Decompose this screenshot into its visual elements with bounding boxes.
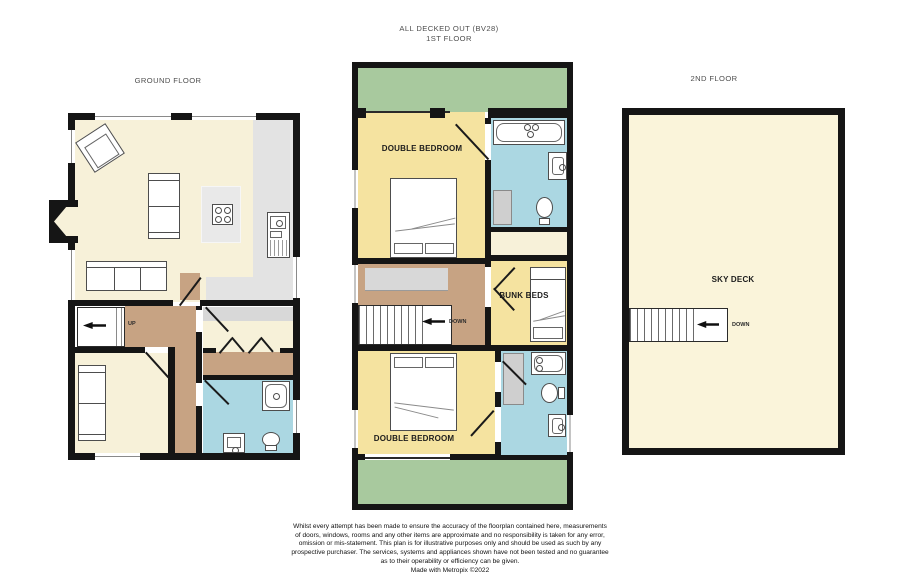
wall: [485, 160, 491, 267]
bathroom-sink-icon: [548, 414, 566, 437]
bathtub-icon: [531, 352, 566, 375]
plan-heading-line1: ALL DECKED OUT (BV28): [399, 24, 498, 33]
window: [352, 265, 358, 303]
wall: [352, 62, 573, 68]
wall: [168, 347, 175, 453]
wall: [196, 306, 202, 310]
sky-deck-label: SKY DECK: [712, 275, 755, 284]
bedroom-bottom-label: DOUBLE BEDROOM: [374, 434, 455, 443]
lobby-floor: [491, 232, 567, 256]
window: [293, 257, 300, 298]
wall: [450, 454, 495, 460]
stairs-down-label: DOWN: [449, 319, 466, 325]
wardrobe: [365, 268, 448, 291]
bathroom-sink-icon: [223, 433, 245, 453]
second-floor-title: 2ND FLOOR: [690, 74, 737, 83]
wall: [196, 332, 202, 383]
disclaimer-line: Whilst every attempt has been made to en…: [291, 523, 608, 532]
wall: [203, 348, 216, 353]
snug-sofa: [78, 365, 106, 441]
hallway-floor-lower: [175, 347, 196, 453]
disclaimer-line: omission or mis-statement. This plan is …: [291, 540, 608, 549]
wall: [491, 227, 567, 232]
bedroom-top-label: DOUBLE BEDROOM: [382, 144, 463, 153]
wall: [491, 255, 567, 261]
wall: [485, 118, 491, 124]
patio-door-line: [365, 457, 450, 459]
kitchen-sink-icon: [267, 212, 290, 258]
wall: [203, 375, 293, 380]
toilet-tank: [539, 218, 550, 225]
stairs-down: [358, 305, 452, 345]
shower-icon: [262, 381, 290, 411]
bathroom-sink-icon: [548, 152, 567, 180]
stairs-up-label: UP: [128, 321, 136, 327]
window: [95, 453, 140, 460]
double-bed: [390, 178, 457, 258]
stairs-up: [77, 307, 125, 347]
wall: [358, 258, 485, 264]
kitchen-floor: [253, 117, 293, 295]
wall: [352, 504, 573, 510]
wall: [68, 300, 173, 306]
plan-heading-line2: 1ST FLOOR: [426, 34, 472, 43]
wall: [485, 307, 491, 348]
toilet-icon: [536, 197, 553, 218]
window: [352, 170, 358, 208]
sofa-two-seat: [148, 173, 180, 239]
deck-top: [358, 68, 567, 112]
ground-floor-plan: UP: [68, 110, 300, 460]
wall: [495, 392, 501, 407]
window: [567, 415, 573, 452]
bunk-room-label: BUNK BEDS: [499, 291, 548, 300]
second-floor-plan: SKY DECK DOWN: [622, 108, 845, 455]
toilet-tank: [558, 387, 565, 399]
wall: [68, 347, 145, 353]
disclaimer-line: as to their operability or efficiency ca…: [291, 558, 608, 567]
wall: [196, 406, 202, 453]
wall: [430, 108, 445, 118]
wall: [495, 351, 501, 362]
window: [352, 410, 358, 448]
sofa-three-seat: [86, 261, 167, 291]
window: [192, 113, 256, 120]
toilet-icon: [541, 383, 558, 403]
double-bed: [390, 353, 457, 431]
wall: [358, 345, 567, 351]
inner-hall-floor: [203, 352, 293, 375]
wall: [358, 454, 365, 460]
wall: [200, 300, 300, 306]
wall: [358, 108, 366, 118]
disclaimer-line: prospective purchaser. The services, sys…: [291, 549, 608, 558]
bunk-bed: [530, 267, 566, 342]
window: [95, 113, 171, 120]
toilet-tank: [265, 445, 277, 451]
ground-floor-title: GROUND FLOOR: [135, 76, 202, 85]
hob-icon: [212, 204, 233, 225]
credit-line: Made with Metropix ©2022: [291, 567, 608, 575]
wall: [495, 442, 501, 455]
first-floor-plan: DOUBLE BEDROOM DOWN: [352, 62, 573, 510]
bathtub-icon: [493, 120, 565, 145]
hall-doorway-floor: [180, 273, 200, 300]
cupboard: [493, 190, 512, 225]
wall: [488, 108, 567, 118]
kitchen-floor-band: [206, 277, 293, 300]
floorplan-page: ALL DECKED OUT (BV28) 1ST FLOOR GROUND F…: [0, 0, 900, 575]
window: [68, 130, 75, 163]
window: [68, 250, 75, 300]
disclaimer: Whilst every attempt has been made to en…: [291, 523, 608, 575]
deck-bottom: [358, 460, 567, 504]
stairs-down-label: DOWN: [732, 322, 749, 328]
disclaimer-line: of doors, windows, rooms and any other i…: [291, 532, 608, 541]
wall: [280, 348, 293, 353]
window: [293, 400, 300, 433]
wall: [495, 455, 567, 460]
